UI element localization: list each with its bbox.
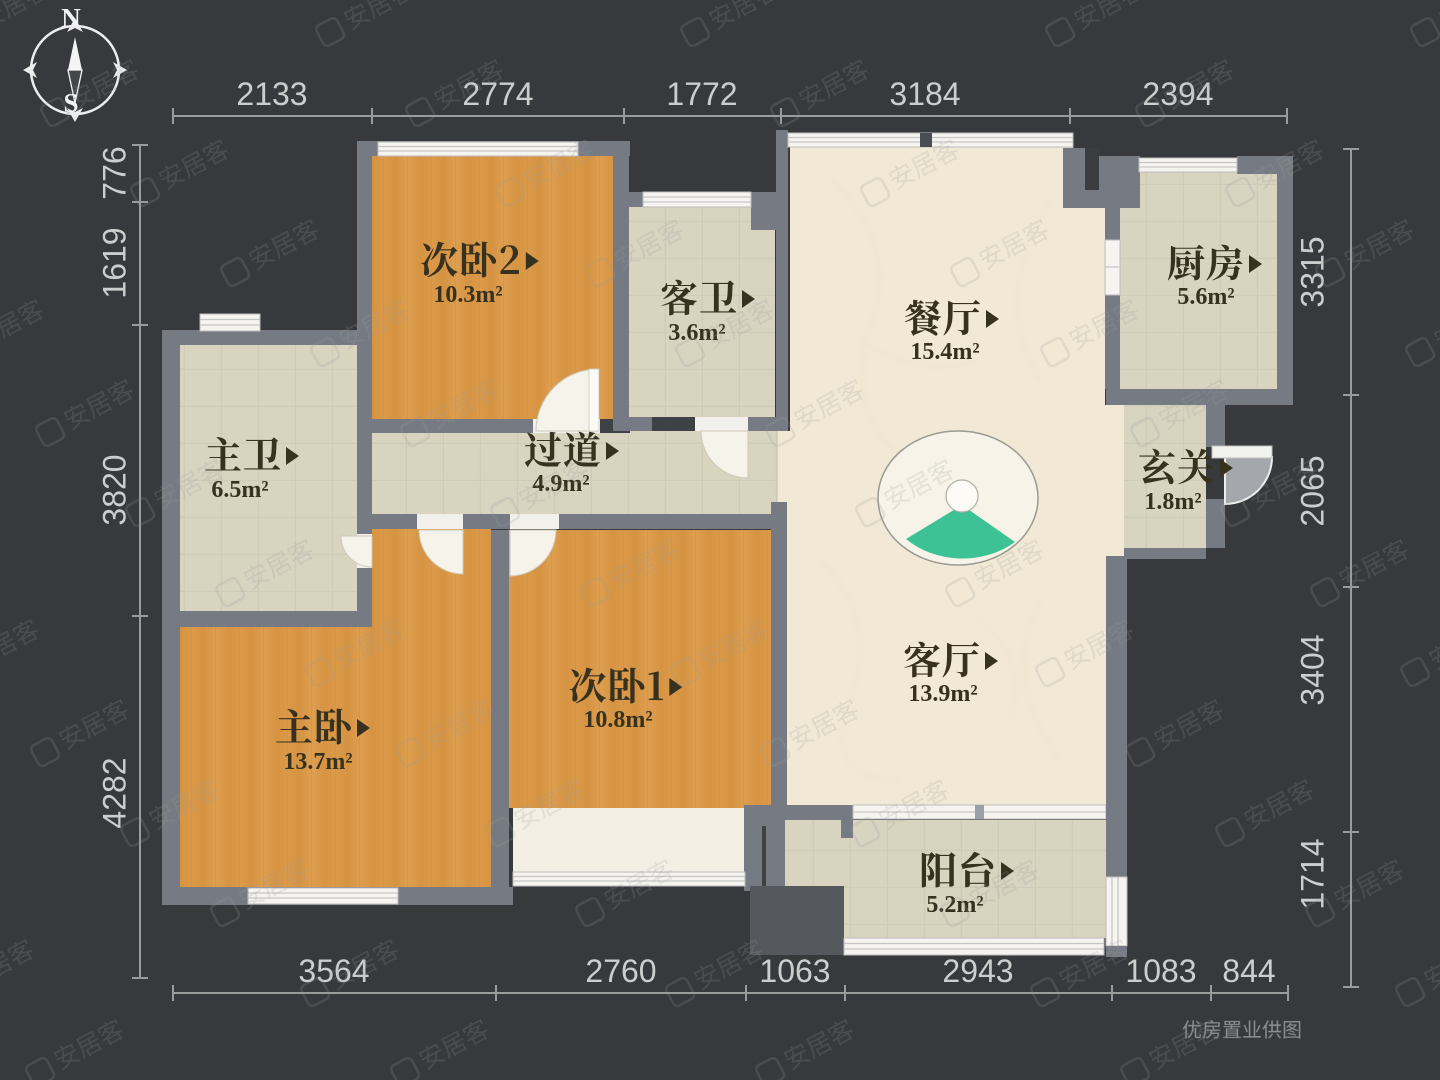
svg-text:776: 776 xyxy=(96,146,132,199)
svg-text:2133: 2133 xyxy=(236,76,307,112)
svg-text:1063: 1063 xyxy=(759,953,830,989)
svg-text:5.6m²: 5.6m² xyxy=(1177,284,1234,310)
svg-text:10.3m²: 10.3m² xyxy=(433,282,502,308)
svg-text:3184: 3184 xyxy=(889,76,960,112)
svg-text:1083: 1083 xyxy=(1125,953,1196,989)
svg-text:3820: 3820 xyxy=(96,454,132,525)
svg-text:15.4m²: 15.4m² xyxy=(910,339,979,365)
svg-text:3315: 3315 xyxy=(1294,236,1330,307)
svg-text:1619: 1619 xyxy=(96,227,132,298)
svg-text:2760: 2760 xyxy=(585,953,656,989)
svg-text:2943: 2943 xyxy=(942,953,1013,989)
svg-text:1.8m²: 1.8m² xyxy=(1144,489,1201,515)
svg-text:1772: 1772 xyxy=(666,76,737,112)
svg-text:5.2m²: 5.2m² xyxy=(926,892,983,918)
svg-text:13.7m²: 13.7m² xyxy=(283,749,352,775)
svg-text:10.8m²: 10.8m² xyxy=(583,707,652,733)
svg-text:13.9m²: 13.9m² xyxy=(908,681,977,707)
svg-text:6.5m²: 6.5m² xyxy=(211,477,268,503)
svg-text:3404: 3404 xyxy=(1294,634,1330,705)
svg-text:844: 844 xyxy=(1222,953,1275,989)
svg-text:4282: 4282 xyxy=(96,757,132,828)
svg-text:N: N xyxy=(61,3,81,33)
